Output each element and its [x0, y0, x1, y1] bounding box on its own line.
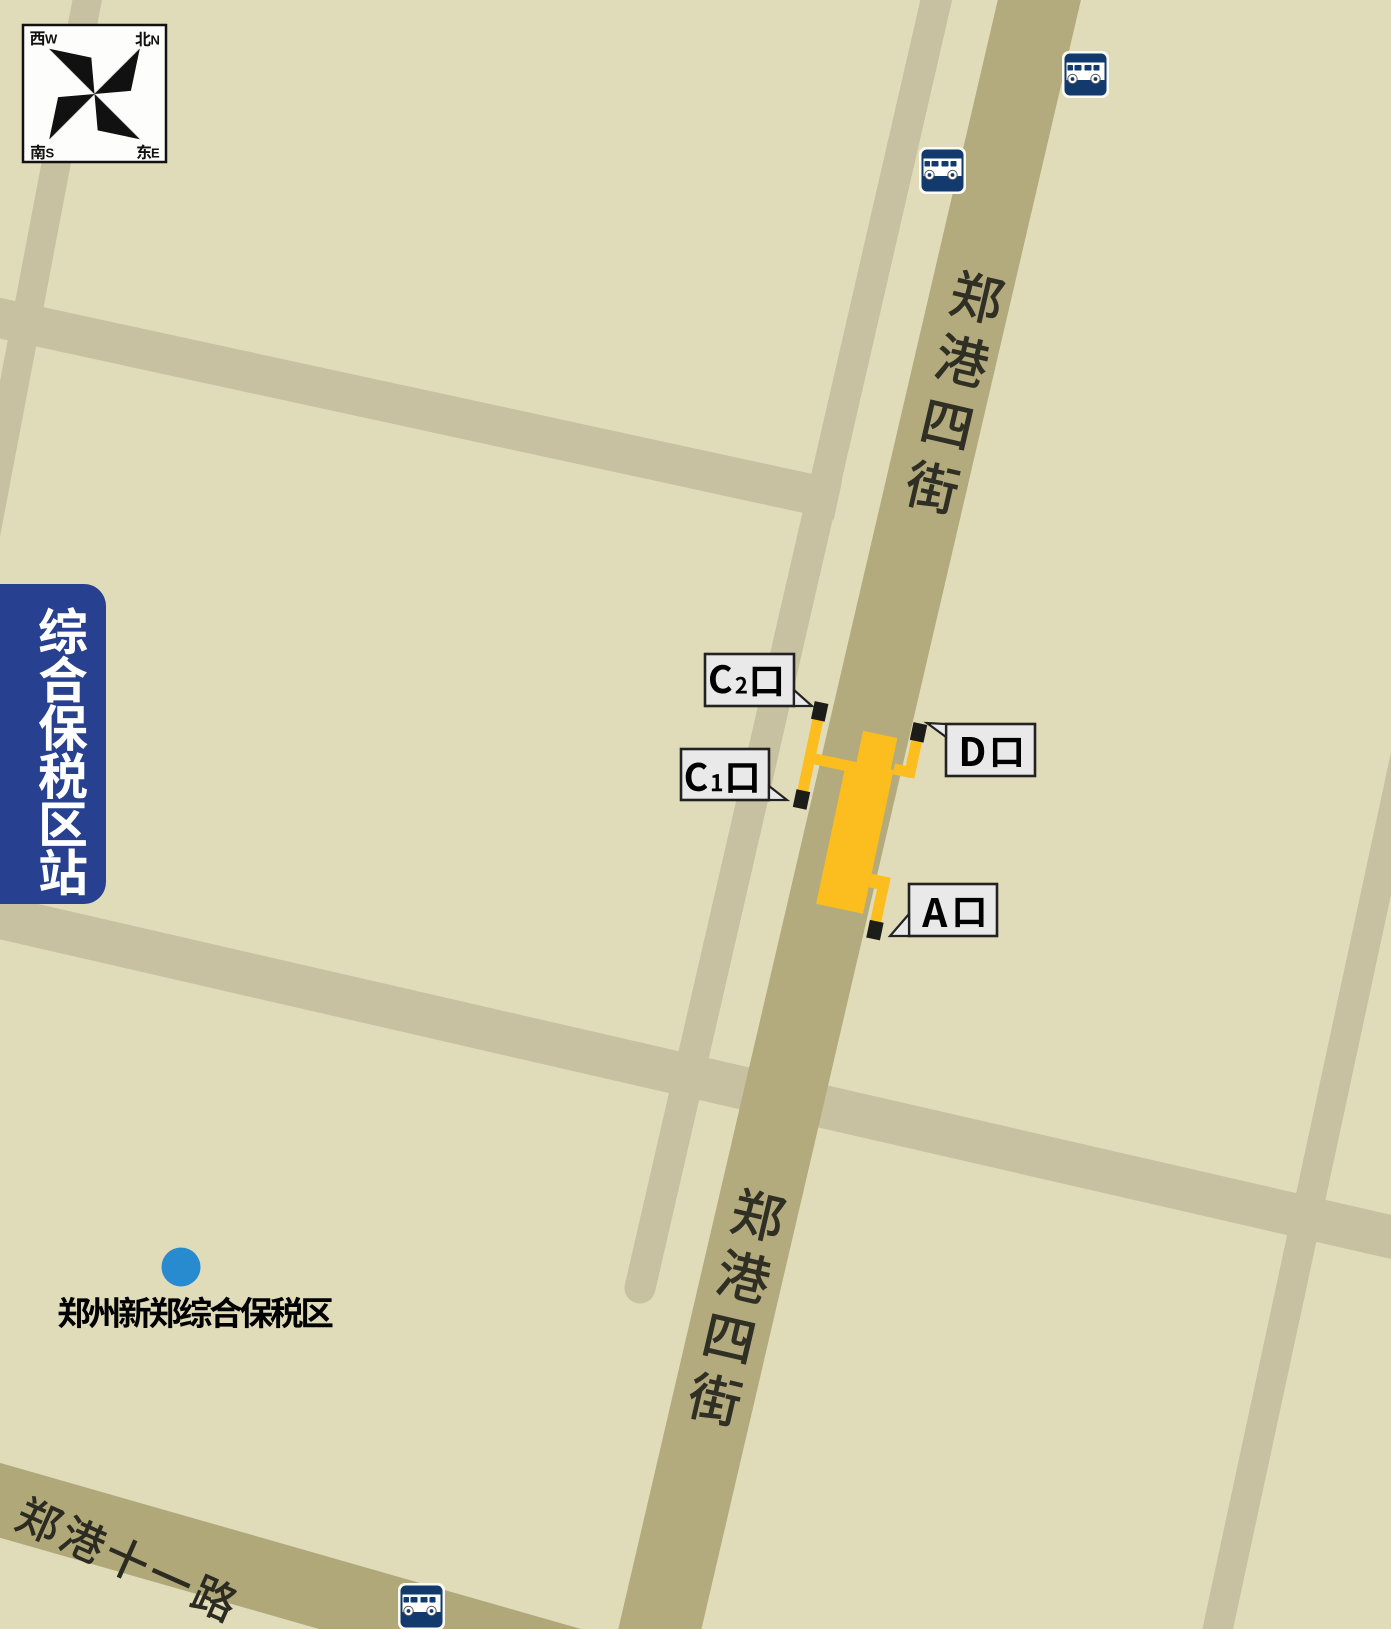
- svg-text:E: E: [151, 146, 160, 161]
- svg-text:W: W: [45, 32, 58, 47]
- svg-text:N: N: [151, 33, 160, 48]
- svg-text:S: S: [46, 146, 55, 161]
